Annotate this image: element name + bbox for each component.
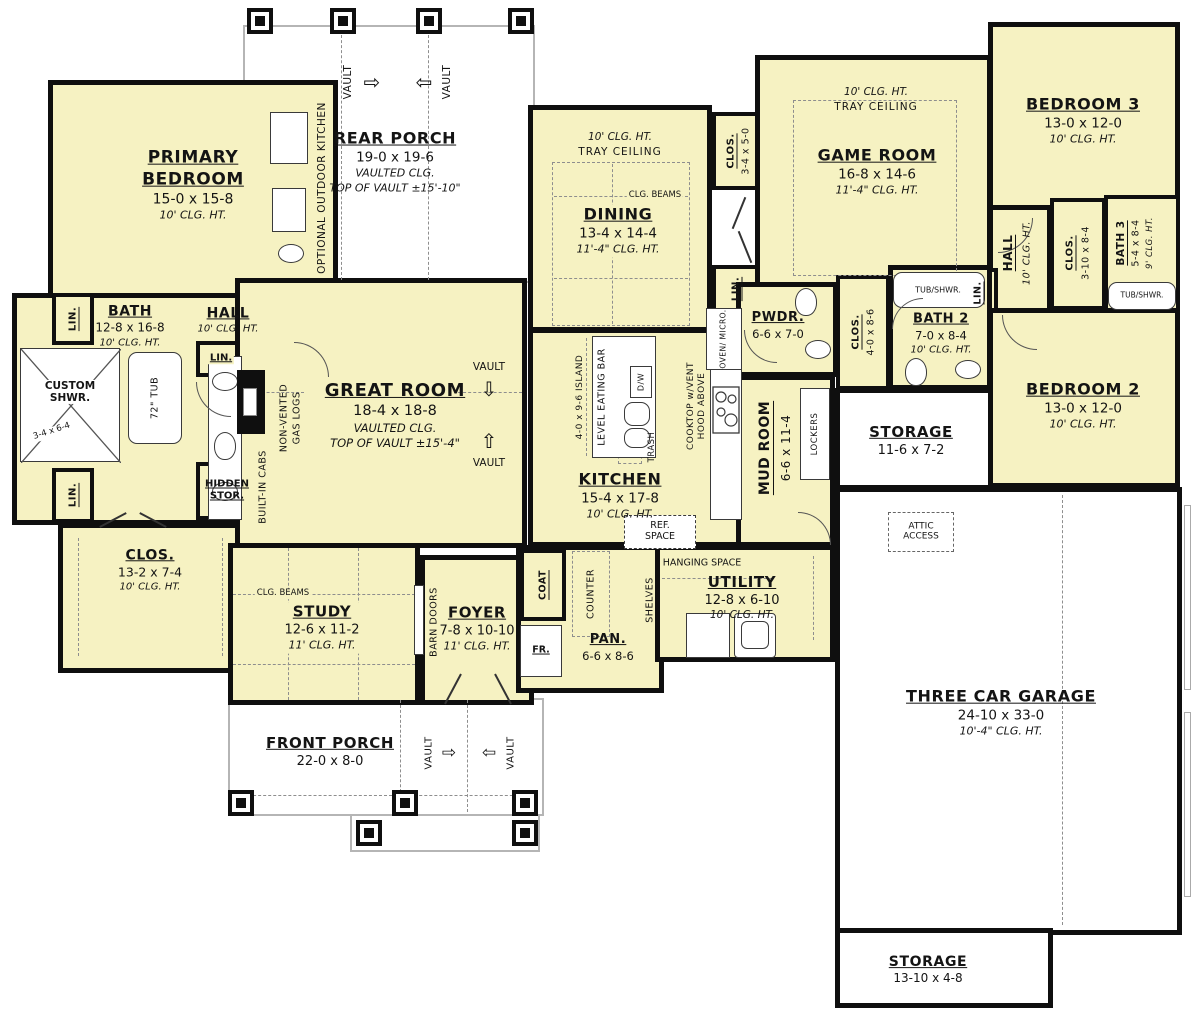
closet-label: CLOS.: [851, 314, 862, 349]
vault-label: VAULT: [473, 457, 505, 469]
built-in-cabs-label: BUILT-IN CABS: [258, 450, 269, 524]
vault-label: VAULT: [441, 65, 453, 100]
vault-arrow-icon: ⇦: [416, 70, 433, 94]
room-dim: 15-4 x 17-8: [579, 490, 662, 508]
custom-shower-label: CUSTOM SHWR.: [37, 380, 103, 404]
barn-doors-label: BARN DOORS: [429, 587, 440, 657]
room-clg: 10' CLG. HT.: [911, 343, 972, 356]
room-dim: 7-0 x 8-4: [911, 328, 972, 343]
vault-label: VAULT: [473, 361, 505, 373]
closet-rod-line: [78, 538, 79, 656]
island-dim-label: 4-0 x 9-6 ISLAND: [575, 355, 585, 440]
room-clg: 10'-4" CLG. HT.: [906, 725, 1096, 739]
foyer-label: FOYER 7-8 x 10-10 11' CLG. HT.: [440, 604, 515, 655]
vault-label: VAULT: [342, 65, 354, 100]
room-clg: 10' CLG. HT.: [705, 609, 780, 623]
game-room-label: GAME ROOM 16-8 x 14-6 11'-4" CLG. HT.: [816, 146, 939, 199]
closet-dim: 4-0 x 8-6: [866, 308, 877, 355]
porch-column: [508, 8, 534, 34]
room-dim: 6-6 x 7-0: [752, 327, 805, 342]
linen-label: LIN.: [731, 277, 742, 301]
room-dim: 7-8 x 10-10: [440, 623, 515, 640]
porch-column: [512, 820, 538, 846]
garage-door-panel: [1184, 505, 1191, 690]
counter-label: COUNTER: [586, 569, 597, 619]
trash-label: TRASH: [647, 432, 657, 463]
custom-shower: [20, 348, 120, 462]
room-name: HALL: [198, 304, 259, 322]
closet-dim: 3-4 x 5-0: [741, 127, 752, 174]
room-name: THREE CAR GARAGE: [906, 687, 1096, 708]
room-dim: 6-6 x 8-6: [582, 649, 634, 664]
vault-arrow-icon: ⇩: [481, 377, 498, 401]
vault-arrow-icon: ⇨: [442, 743, 456, 763]
room-name: PAN.: [582, 632, 634, 649]
attic-access-label: ATTIC ACCESS: [895, 522, 947, 543]
cooktop-icon: [712, 386, 740, 434]
linen-label: LIN.: [68, 483, 79, 507]
mud-room-dim: 6-6 x 11-4: [779, 415, 793, 482]
room-dim: 12-6 x 11-2: [285, 622, 360, 639]
hall-left-label: HALL 10' CLG. HT.: [198, 304, 259, 335]
room-name: CLOS.: [118, 546, 182, 564]
eating-bar-overhang: [586, 338, 587, 456]
room-name: BEDROOM 2: [1026, 380, 1140, 401]
tub-label: 72" TUB: [150, 377, 161, 419]
cooktop-label-1: COOKTOP w/VENT: [686, 362, 696, 450]
room-clg: VAULTED CLG.: [325, 421, 465, 436]
study-label: STUDY 12-6 x 11-2 11' CLG. HT.: [283, 603, 362, 654]
door-line: [738, 231, 753, 263]
room-clg: 10' CLG. HT.: [1026, 418, 1140, 432]
shower-x-icon: [21, 349, 121, 463]
closet-dim: 3-10 x 8-4: [1081, 226, 1092, 280]
room-dim: 24-10 x 33-0: [906, 707, 1096, 725]
room-name: FRONT PORCH: [266, 734, 394, 754]
hidden-storage-label: HIDDEN STOR.: [202, 479, 252, 502]
linen-label: LIN.: [208, 352, 234, 364]
gas-logs-label-2: GAS LOGS: [292, 392, 303, 445]
room-clg: 11' CLG. HT.: [285, 639, 360, 653]
pantry-label: PAN. 6-6 x 8-6: [582, 632, 634, 664]
closet-rod-line: [222, 538, 223, 656]
room-dim: 11-6 x 7-2: [869, 442, 953, 459]
room-name: UTILITY: [705, 573, 780, 593]
room-name: BEDROOM 3: [1026, 95, 1140, 116]
rear-porch-label: REAR PORCH 19-0 x 19-6 VAULTED CLG. TOP …: [329, 129, 460, 196]
porch-column: [330, 8, 356, 34]
storage-bottom-label: STORAGE 13-10 x 4-8: [889, 953, 967, 987]
room-dim: 13-4 x 14-4: [576, 225, 659, 243]
outdoor-sink-fixture: [278, 244, 304, 263]
front-porch-label: FRONT PORCH 22-0 x 8-0: [266, 734, 394, 770]
toilet: [214, 432, 236, 460]
porch-column: [416, 8, 442, 34]
dining-tray-label: TRAY CEILING: [578, 146, 661, 158]
cooktop-label-2: HOOD ABOVE: [697, 373, 707, 440]
room-dim: 13-0 x 12-0: [1026, 115, 1140, 133]
oven-micro-label: OVEN/ MICRO.: [719, 309, 728, 368]
garage-label: THREE CAR GARAGE 24-10 x 33-0 10'-4" CLG…: [906, 687, 1096, 740]
room-dim: 12-8 x 16-8: [95, 321, 164, 337]
great-room-label: GREAT ROOM 18-4 x 18-8 VAULTED CLG. TOP …: [325, 379, 465, 451]
closet-label: CLOS.: [1065, 235, 1076, 270]
hall-right-clg: 10' CLG. HT.: [1022, 221, 1033, 285]
porch-column: [356, 820, 382, 846]
room-vault-note: TOP OF VAULT ±15'-4": [325, 436, 465, 451]
game-tray-clg-label: 10' CLG. HT.: [844, 86, 908, 98]
room-dim: 22-0 x 8-0: [266, 753, 394, 770]
gas-logs-label-1: NON-VENTED: [279, 384, 290, 452]
clg-beams-label: CLG. BEAMS: [255, 589, 311, 599]
bedroom2-closet: [836, 275, 890, 390]
barn-door-panel: [414, 585, 424, 655]
clg-beams-label: CLG. BEAMS: [627, 191, 683, 201]
room-name: PRIMARY BEDROOM: [103, 147, 283, 191]
room-name: GAME ROOM: [818, 146, 937, 167]
sink: [805, 340, 831, 359]
room-name: KITCHEN: [579, 470, 662, 491]
room-name: BATH 2: [911, 312, 972, 329]
room-clg: 11'-4" CLG. HT.: [818, 184, 937, 198]
room-dim: 13-10 x 4-8: [889, 971, 967, 987]
bath3-clg: 9' CLG. HT.: [1145, 217, 1155, 269]
powder-label: PWDR. 6-6 x 7-0: [752, 310, 805, 342]
dryer-door: [741, 621, 769, 649]
room-dim: 19-0 x 19-6: [329, 149, 460, 167]
primary-bedroom-label: PRIMARY BEDROOM 15-0 x 15-8 10' CLG. HT.: [103, 147, 283, 224]
room-dim: 13-0 x 12-0: [1026, 400, 1140, 418]
vault-label: VAULT: [424, 736, 435, 769]
room-name: BATH: [95, 303, 164, 321]
vault-arrow-icon: ⇦: [482, 743, 496, 763]
tub-shower-label: TUB/SHWR.: [915, 285, 961, 294]
room-name: DINING: [576, 205, 659, 226]
bath-label: BATH 12-8 x 16-8 10' CLG. HT.: [95, 303, 164, 350]
hall-right-label: HALL: [1001, 235, 1015, 272]
utility-label: UTILITY 12-8 x 6-10 10' CLG. HT.: [705, 573, 780, 623]
front-porch-edge-line: [238, 795, 533, 796]
room-name: STORAGE: [889, 953, 967, 971]
dishwasher-label: D/W: [637, 373, 646, 391]
tub-shower-label: TUB/SHWR.: [1121, 292, 1164, 301]
room-name: GREAT ROOM: [325, 379, 465, 402]
shelves-label: SHELVES: [645, 577, 656, 622]
room-clg: 10' CLG. HT.: [1026, 133, 1140, 147]
room-vault-note: TOP OF VAULT ±15'-10": [329, 181, 460, 195]
porch-column: [228, 790, 254, 816]
bedroom3-label: BEDROOM 3 13-0 x 12-0 10' CLG. HT.: [1026, 95, 1140, 148]
room-name: STORAGE: [869, 423, 953, 443]
fireplace-firebox: [243, 388, 257, 416]
dining-tray-clg-label: 10' CLG. HT.: [588, 131, 652, 143]
storage-side-label: STORAGE 11-6 x 7-2: [869, 423, 953, 459]
vault-arrow-icon: ⇧: [481, 429, 498, 453]
bath2-label: BATH 2 7-0 x 8-4 10' CLG. HT.: [911, 312, 972, 357]
sink: [955, 360, 981, 379]
closet-label: CLOS.: [726, 133, 737, 168]
eating-bar-label: LEVEL EATING BAR: [597, 348, 608, 446]
ref-space-label: REF. SPACE: [637, 521, 683, 543]
dining-label: DINING 13-4 x 14-4 11'-4" CLG. HT.: [574, 205, 661, 258]
room-dim: 13-2 x 7-4: [118, 564, 182, 580]
room-name: STUDY: [285, 603, 360, 623]
room-clg: 11' CLG. HT.: [440, 640, 515, 654]
room-name: REAR PORCH: [329, 129, 460, 150]
bath3-dim: 5-4 x 8-4: [1131, 219, 1142, 266]
bedroom2-label: BEDROOM 2 13-0 x 12-0 10' CLG. HT.: [1026, 380, 1140, 433]
fridge-label: FR.: [532, 646, 550, 657]
room-clg: 10' CLG. HT.: [95, 336, 164, 349]
porch-column: [392, 790, 418, 816]
vault-arrow-icon: ⇨: [364, 70, 381, 94]
bedroom3-closet: [1050, 198, 1106, 310]
coat-label: COAT: [538, 570, 549, 600]
kitchen-label: KITCHEN 15-4 x 17-8 10' CLG. HT.: [579, 470, 662, 523]
toilet: [905, 358, 927, 386]
room-dim: 18-4 x 18-8: [325, 402, 465, 421]
mud-room-label: MUD ROOM: [757, 401, 773, 495]
room-dim: 12-8 x 6-10: [705, 592, 780, 609]
primary-closet-label: CLOS. 13-2 x 7-4 10' CLG. HT.: [118, 546, 182, 593]
bath3-label: BATH 3: [1115, 220, 1127, 265]
room-clg: 11'-4" CLG. HT.: [576, 243, 659, 257]
vault-label: VAULT: [506, 736, 517, 769]
room-clg: VAULTED CLG.: [329, 167, 460, 181]
room-clg: 10' CLG. HT.: [103, 209, 283, 223]
outdoor-kitchen-label: OPTIONAL OUTDOOR KITCHEN: [316, 102, 328, 274]
floor-plan: REAR PORCH 19-0 x 19-6 VAULTED CLG. TOP …: [0, 0, 1200, 1019]
room-name: FOYER: [440, 604, 515, 624]
beam-line: [554, 278, 688, 279]
porch-column: [247, 8, 273, 34]
room-dim: 15-0 x 15-8: [103, 191, 283, 209]
beam-line: [233, 664, 415, 665]
porch-column: [512, 790, 538, 816]
utility-counter-line: [813, 556, 814, 640]
room-dim: 16-8 x 14-6: [818, 166, 937, 184]
hanging-space-label: HANGING SPACE: [661, 559, 744, 570]
game-tray-label: TRAY CEILING: [834, 101, 917, 113]
lockers-label: LOCKERS: [810, 413, 820, 456]
island-sink: [624, 402, 650, 426]
room-name: PWDR.: [752, 310, 805, 327]
room-clg: 10' CLG. HT.: [198, 323, 259, 336]
door-line: [732, 197, 747, 229]
garage-door-panel: [1184, 712, 1191, 897]
linen-label: LIN.: [68, 307, 79, 331]
room-clg: 10' CLG. HT.: [118, 581, 182, 594]
linen-label: LIN.: [973, 281, 984, 304]
